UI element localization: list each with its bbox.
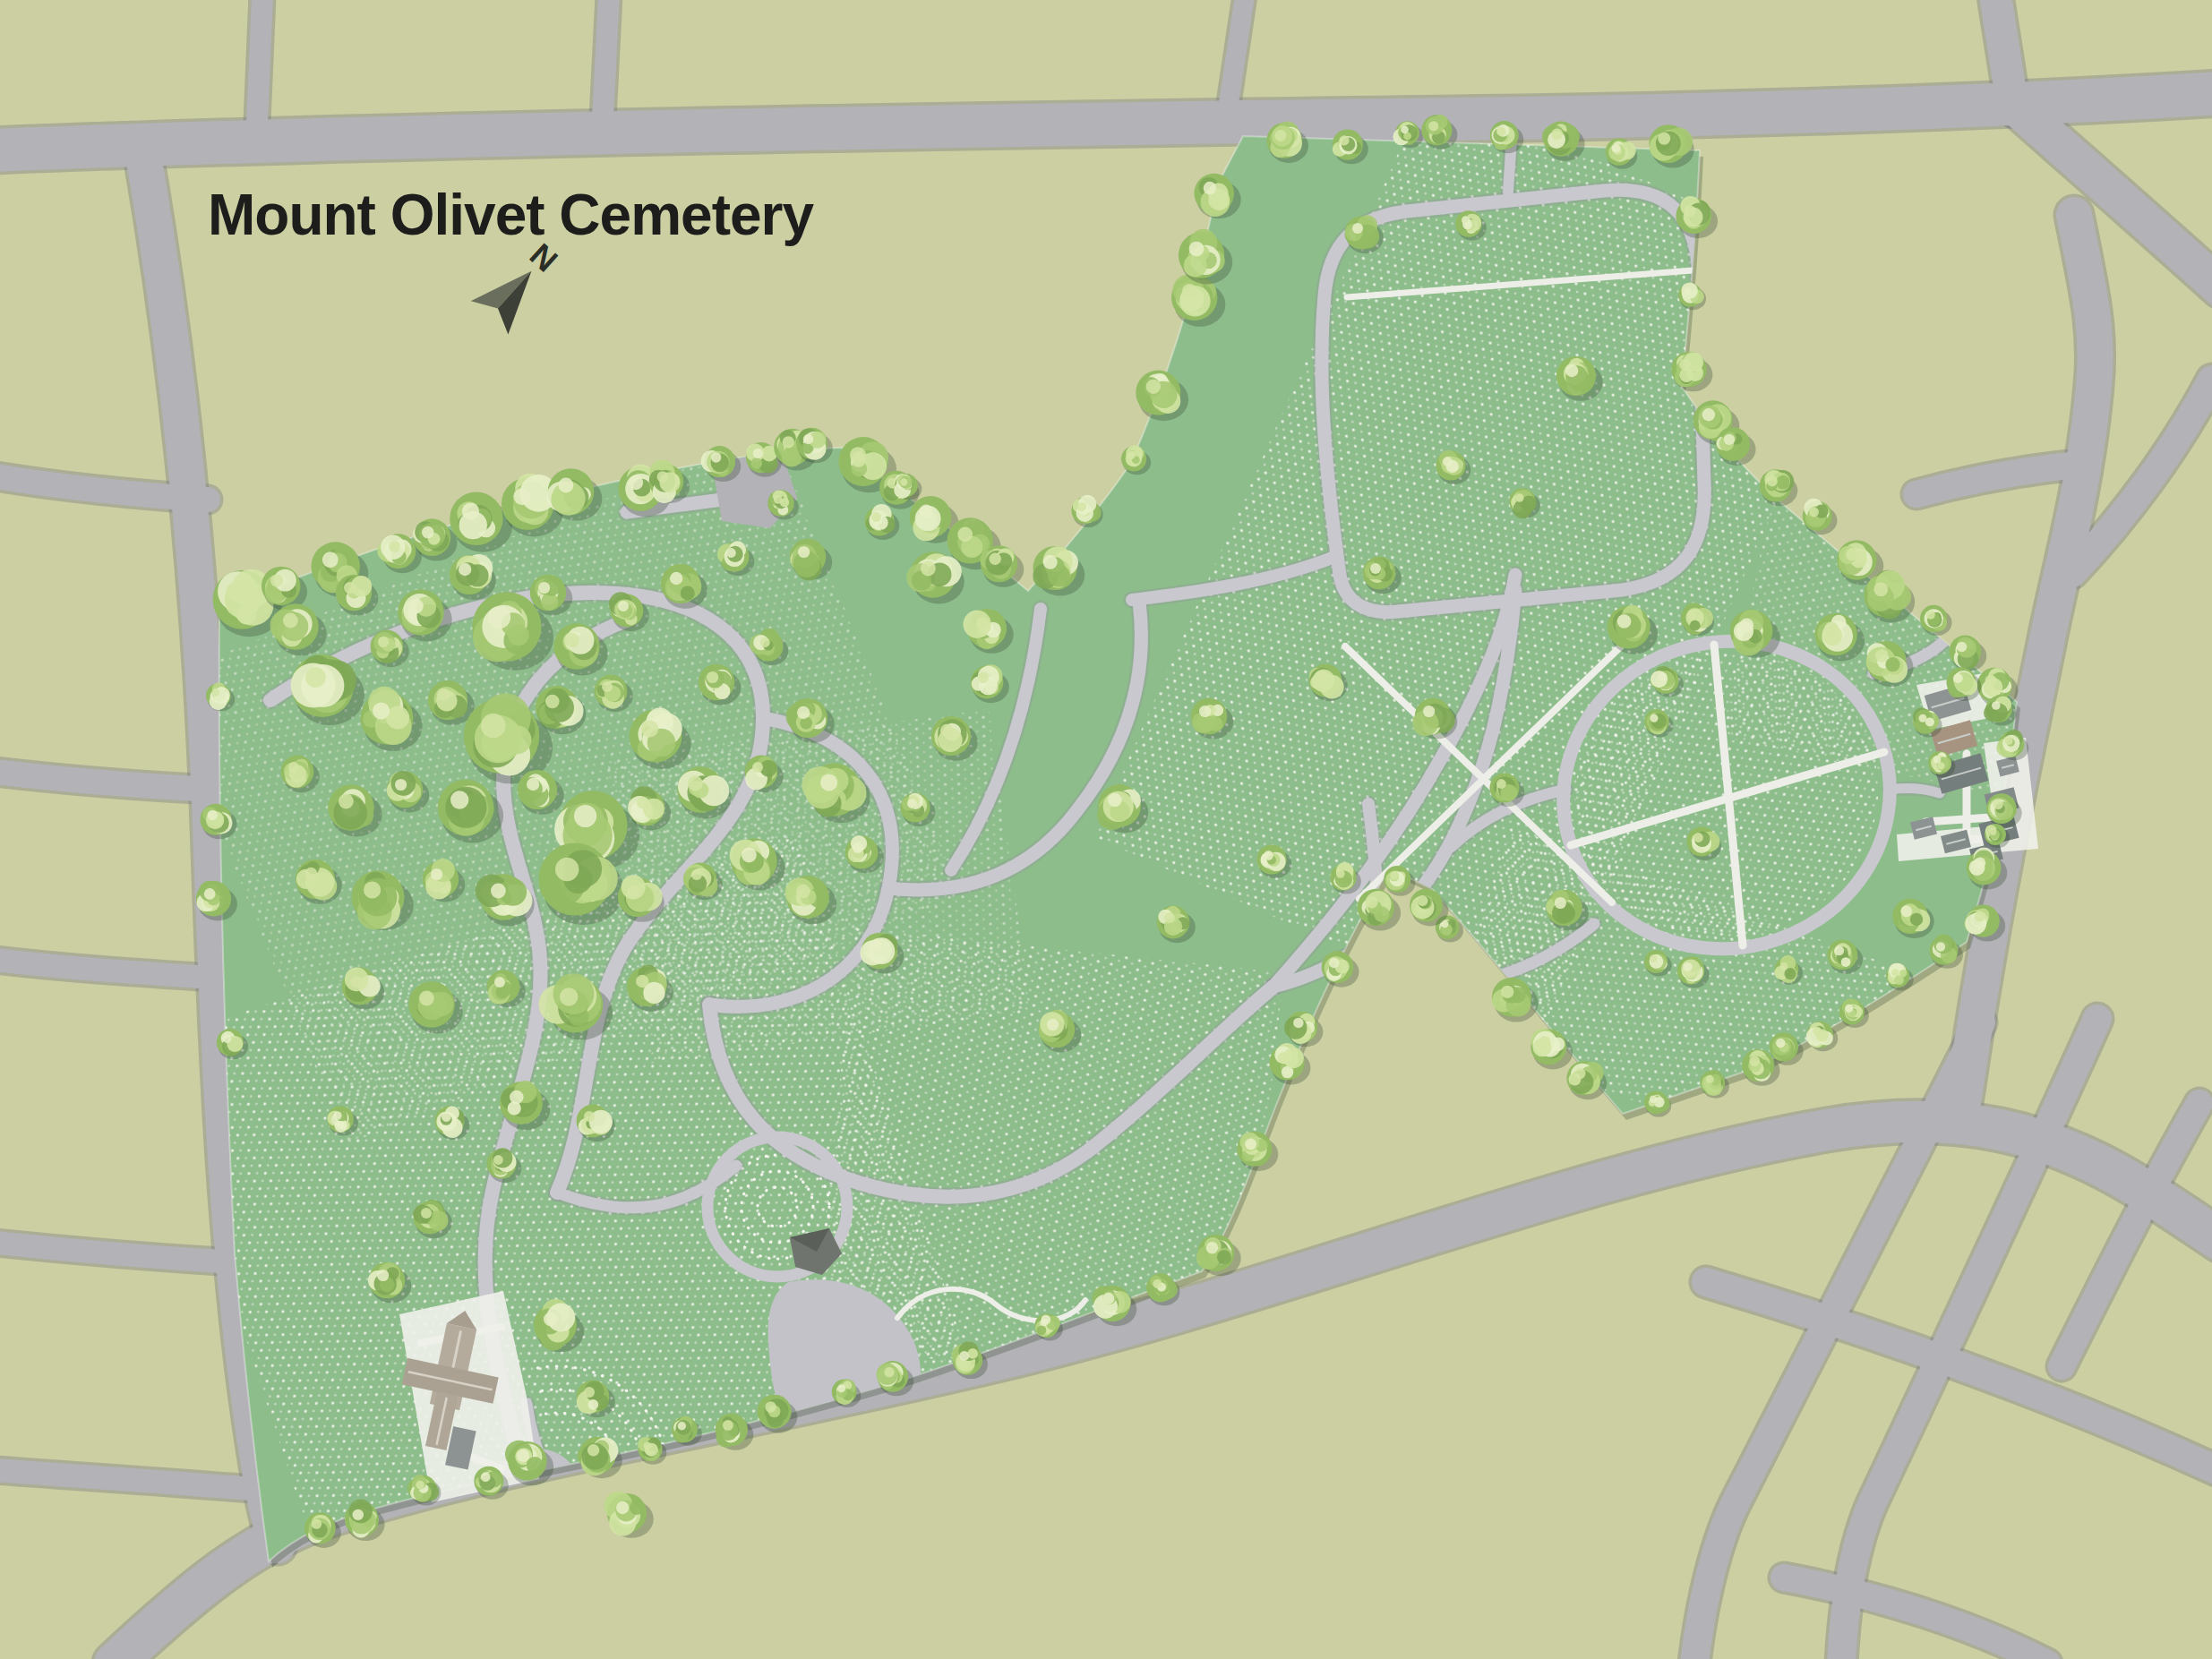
map-title: Mount Olivet Cemetery [208, 183, 814, 247]
cemetery-map: Mount Olivet Cemetery N [0, 0, 2212, 1659]
map-canvas: Mount Olivet Cemetery N [0, 0, 2212, 1659]
